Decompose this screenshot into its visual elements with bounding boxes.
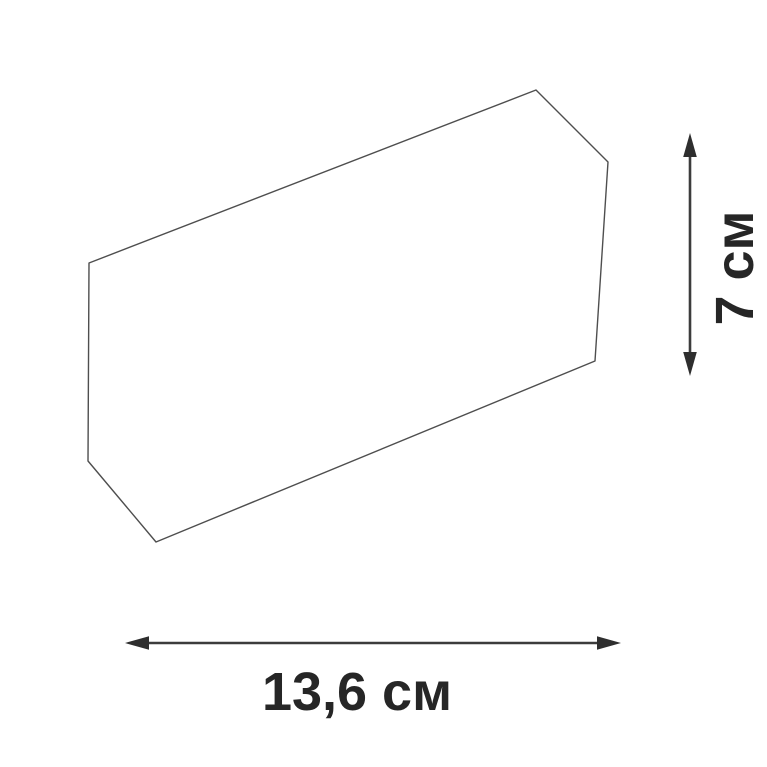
drawing-canvas: [0, 0, 767, 767]
dimension-diagram: 13,6 см 7 см: [0, 0, 767, 767]
height-dimension-arrow: [683, 133, 697, 376]
panel-outline-shape: [88, 90, 608, 542]
arrow-right-head-icon: [597, 636, 621, 650]
arrow-down-head-icon: [683, 352, 697, 376]
arrow-up-head-icon: [683, 133, 697, 157]
width-dimension-arrow: [125, 636, 621, 650]
arrow-left-head-icon: [125, 636, 149, 650]
height-dimension-label: 7 см: [708, 210, 762, 325]
width-dimension-label: 13,6 см: [262, 665, 452, 719]
